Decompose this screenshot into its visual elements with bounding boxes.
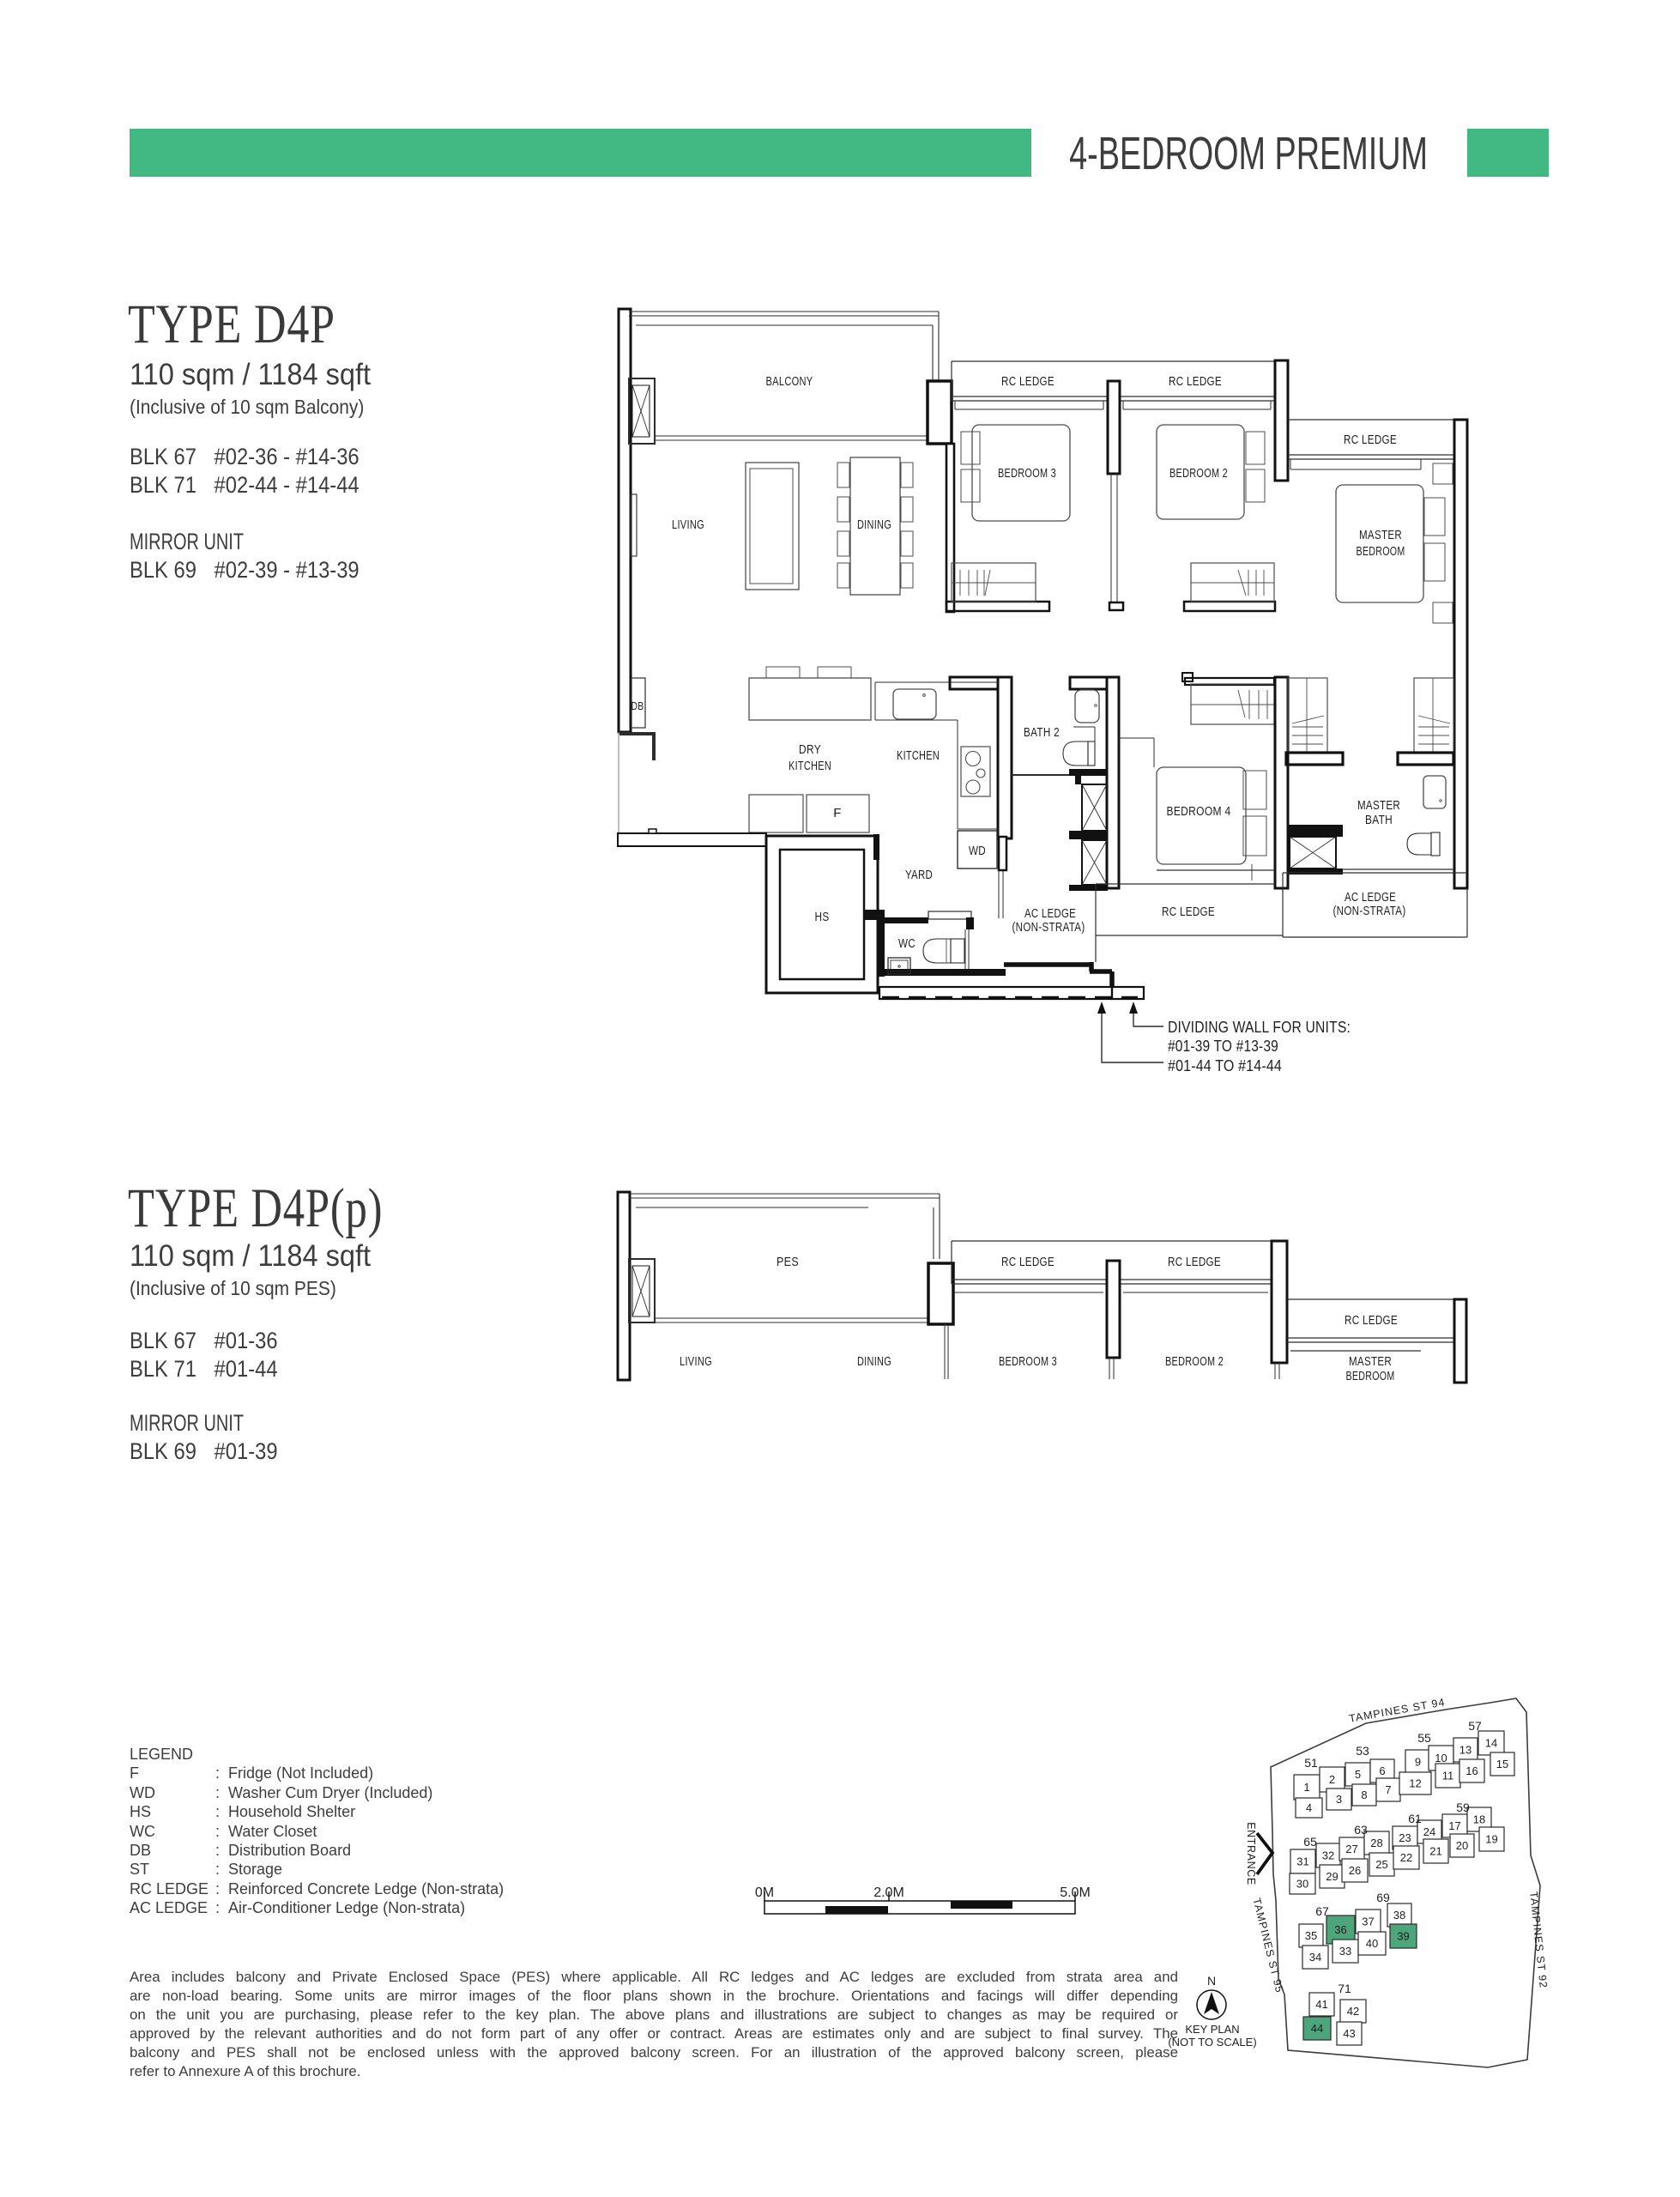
svg-text:KITCHEN: KITCHEN: [897, 748, 940, 763]
svg-text:BEDROOM 2: BEDROOM 2: [1165, 1354, 1224, 1369]
svg-text:67: 67: [1315, 1904, 1329, 1918]
svg-text:14: 14: [1485, 1737, 1497, 1750]
svg-text:35: 35: [1305, 1929, 1317, 1942]
svg-text:2.0M: 2.0M: [873, 1885, 904, 1900]
svg-text:6: 6: [1379, 1764, 1385, 1777]
svg-text:BEDROOM 2: BEDROOM 2: [1169, 466, 1228, 481]
svg-text:WD: WD: [969, 844, 986, 858]
svg-text:4: 4: [1306, 1801, 1312, 1814]
svg-text:RC LEDGE: RC LEDGE: [1168, 1255, 1221, 1269]
svg-text:BEDROOM: BEDROOM: [1346, 1369, 1395, 1383]
svg-text:26: 26: [1349, 1864, 1361, 1877]
svg-text:N: N: [1207, 1974, 1216, 1988]
svg-text:65: 65: [1303, 1835, 1317, 1849]
svg-text:(NOT TO SCALE): (NOT TO SCALE): [1168, 2036, 1256, 2049]
svg-text:2: 2: [1329, 1773, 1335, 1786]
svg-text:RC LEDGE: RC LEDGE: [1169, 374, 1222, 389]
svg-text:MASTER: MASTER: [1349, 1354, 1392, 1369]
svg-text:F: F: [833, 806, 842, 820]
svg-text:16: 16: [1465, 1764, 1478, 1777]
svg-text:69: 69: [1376, 1891, 1390, 1904]
svg-text:#01-44 TO #14-44: #01-44 TO #14-44: [1168, 1057, 1282, 1074]
svg-text:#01-39 TO #13-39: #01-39 TO #13-39: [1168, 1038, 1278, 1055]
svg-text:5.0M: 5.0M: [1060, 1885, 1091, 1900]
svg-text:BATH 2: BATH 2: [1024, 725, 1060, 740]
svg-text:AC LEDGE: AC LEDGE: [1345, 890, 1396, 905]
svg-text:15: 15: [1496, 1758, 1508, 1770]
svg-text:0M: 0M: [755, 1885, 774, 1900]
svg-text:1: 1: [1303, 1781, 1309, 1794]
svg-text:DINING: DINING: [857, 1354, 891, 1369]
svg-text:MASTER: MASTER: [1359, 528, 1402, 542]
svg-text:BEDROOM 4: BEDROOM 4: [1167, 804, 1231, 819]
svg-text:63: 63: [1354, 1823, 1368, 1837]
svg-text:KITCHEN: KITCHEN: [789, 759, 831, 773]
svg-text:24: 24: [1423, 1825, 1435, 1838]
svg-text:8: 8: [1361, 1788, 1367, 1801]
svg-text:BEDROOM 3: BEDROOM 3: [999, 1354, 1057, 1369]
svg-text:28: 28: [1370, 1837, 1382, 1849]
svg-text:DB: DB: [632, 699, 644, 712]
svg-text:31: 31: [1296, 1855, 1308, 1868]
svg-text:27: 27: [1345, 1843, 1357, 1855]
svg-text:53: 53: [1356, 1744, 1369, 1758]
svg-text:20: 20: [1456, 1839, 1468, 1852]
svg-text:18: 18: [1473, 1813, 1485, 1826]
svg-text:59: 59: [1456, 1801, 1470, 1814]
svg-text:12: 12: [1409, 1777, 1421, 1790]
svg-text:RC LEDGE: RC LEDGE: [1001, 374, 1055, 389]
svg-text:5: 5: [1355, 1768, 1361, 1781]
svg-text:7: 7: [1385, 1783, 1391, 1796]
svg-text:PES: PES: [777, 1255, 799, 1269]
svg-text:32: 32: [1322, 1849, 1334, 1862]
svg-text:21: 21: [1429, 1845, 1441, 1858]
svg-text:DIVIDING WALL FOR UNITS:: DIVIDING WALL FOR UNITS:: [1168, 1019, 1351, 1036]
svg-text:DINING: DINING: [857, 517, 891, 532]
svg-text:17: 17: [1448, 1819, 1460, 1832]
svg-text:39: 39: [1397, 1930, 1409, 1943]
svg-text:36: 36: [1334, 1923, 1346, 1936]
svg-text:RC LEDGE: RC LEDGE: [1162, 905, 1215, 919]
svg-text:AC LEDGE: AC LEDGE: [1024, 906, 1076, 921]
svg-text:LIVING: LIVING: [672, 517, 704, 532]
svg-text:BALCONY: BALCONY: [766, 374, 813, 389]
svg-text:40: 40: [1366, 1937, 1378, 1950]
svg-text:51: 51: [1304, 1756, 1318, 1770]
svg-text:23: 23: [1399, 1831, 1411, 1844]
svg-text:41: 41: [1315, 1998, 1327, 2011]
svg-text:30: 30: [1296, 1878, 1308, 1891]
svg-text:(NON-STRATA): (NON-STRATA): [1012, 920, 1085, 935]
svg-text:YARD: YARD: [905, 868, 933, 882]
svg-text:55: 55: [1417, 1731, 1431, 1745]
svg-text:34: 34: [1309, 1951, 1321, 1964]
svg-text:25: 25: [1375, 1858, 1387, 1871]
svg-text:61: 61: [1408, 1812, 1422, 1825]
svg-text:RC LEDGE: RC LEDGE: [1344, 433, 1397, 447]
svg-text:13: 13: [1459, 1744, 1472, 1757]
svg-text:RC LEDGE: RC LEDGE: [1345, 1313, 1398, 1328]
svg-text:(NON-STRATA): (NON-STRATA): [1333, 904, 1406, 918]
svg-text:38: 38: [1393, 1909, 1405, 1922]
svg-text:19: 19: [1485, 1833, 1497, 1846]
svg-text:11: 11: [1442, 1770, 1454, 1782]
svg-text:HS: HS: [815, 910, 830, 924]
svg-text:3: 3: [1336, 1793, 1342, 1806]
svg-text:43: 43: [1343, 2027, 1355, 2040]
svg-text:BEDROOM: BEDROOM: [1357, 544, 1405, 559]
svg-text:44: 44: [1311, 2022, 1323, 2035]
svg-text:RC LEDGE: RC LEDGE: [1001, 1255, 1055, 1269]
svg-text:MASTER: MASTER: [1357, 798, 1400, 813]
svg-text:42: 42: [1347, 2005, 1359, 2018]
svg-text:ENTRANCE: ENTRANCE: [1245, 1822, 1257, 1885]
svg-text:10: 10: [1435, 1752, 1447, 1764]
svg-text:9: 9: [1415, 1756, 1421, 1769]
svg-text:LIVING: LIVING: [680, 1354, 712, 1369]
svg-text:71: 71: [1338, 1982, 1351, 1995]
svg-text:DRY: DRY: [799, 742, 821, 757]
svg-text:WC: WC: [898, 936, 916, 951]
svg-text:KEY PLAN: KEY PLAN: [1185, 2023, 1239, 2036]
svg-text:37: 37: [1362, 1916, 1374, 1928]
svg-text:22: 22: [1400, 1851, 1412, 1864]
svg-text:BATH: BATH: [1365, 813, 1393, 827]
svg-text:57: 57: [1468, 1719, 1482, 1733]
svg-text:33: 33: [1339, 1945, 1351, 1958]
svg-text:BEDROOM 3: BEDROOM 3: [998, 466, 1056, 481]
svg-text:29: 29: [1326, 1870, 1338, 1883]
